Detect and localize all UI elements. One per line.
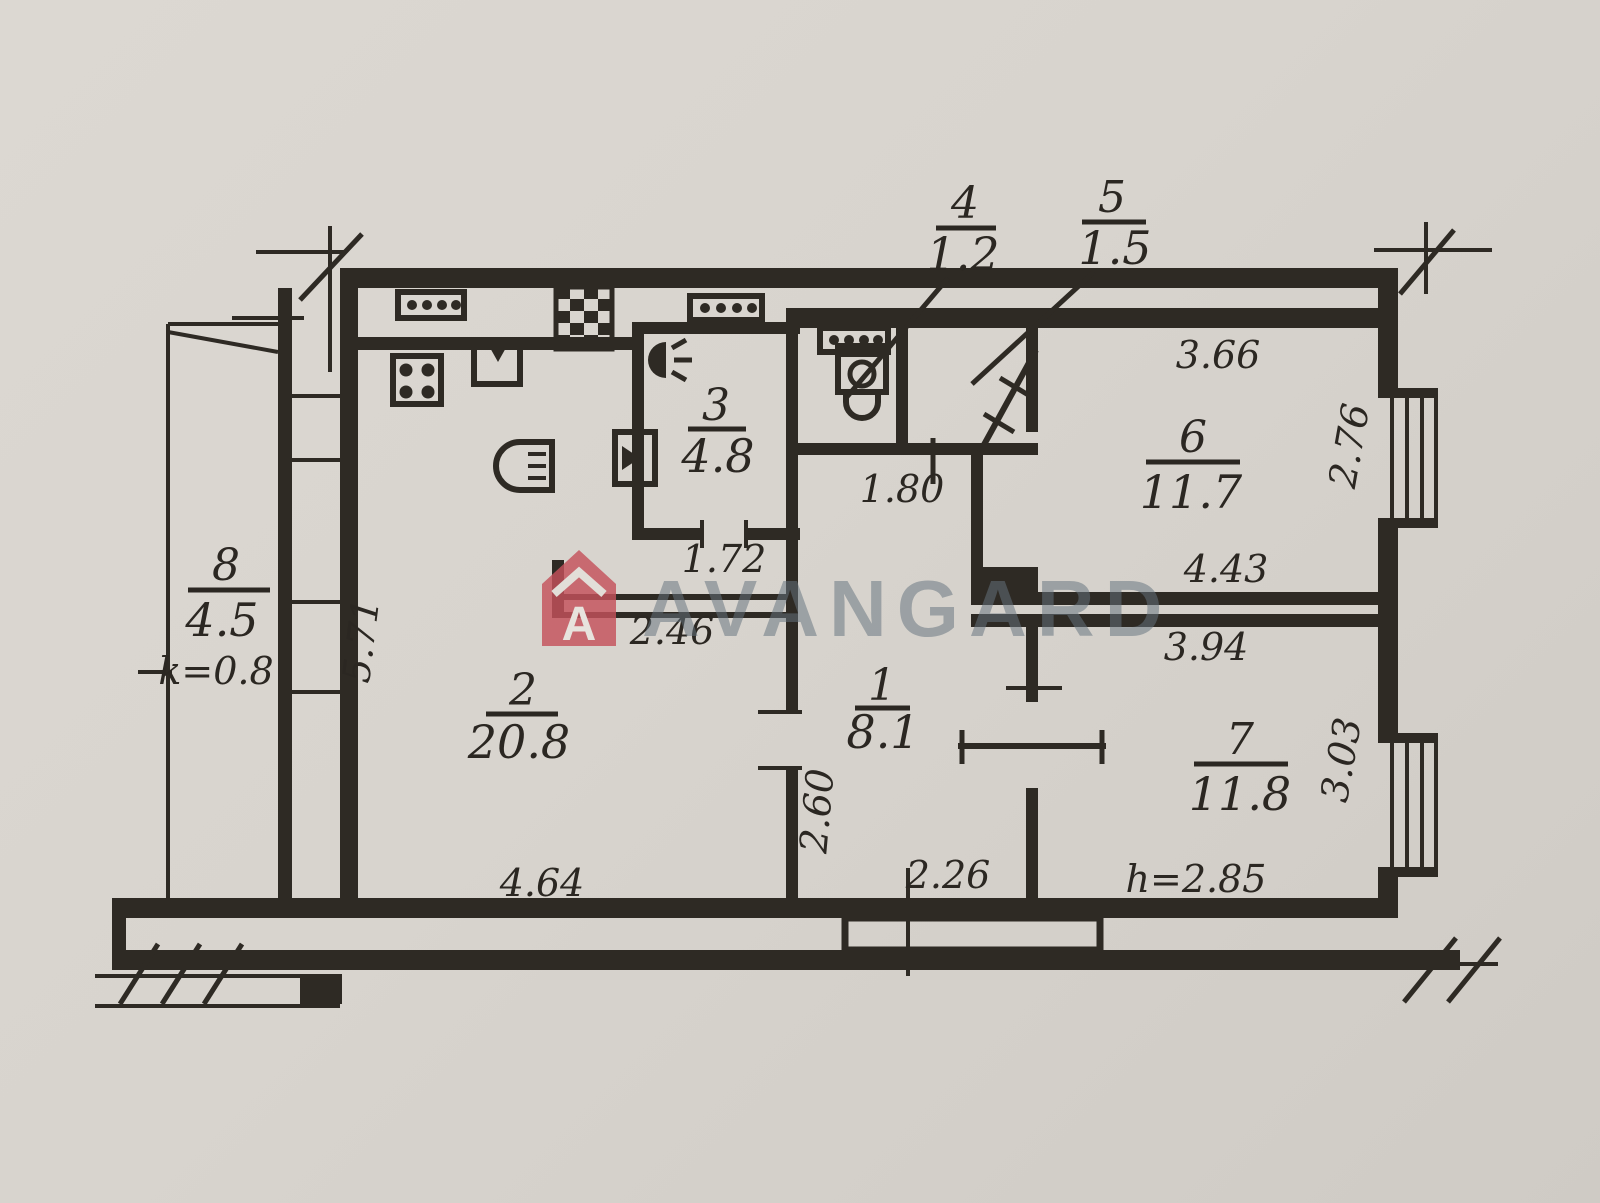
room-2-area: 20.8 [467, 715, 570, 769]
room-6-number: 6 [1179, 412, 1207, 463]
room-4-area: 1.2 [926, 227, 999, 281]
fridge-icon [496, 442, 552, 490]
room-7-area: 11.8 [1189, 767, 1291, 821]
dim-closet-width: 1.80 [860, 467, 945, 511]
balcony-corner-fold [168, 332, 278, 352]
watermark-text: AVANGARD [642, 564, 1172, 653]
floor-plan-canvas: 1 8.1 2 20.8 3 4.8 4 1.2 5 1.5 6 11.7 7 … [0, 0, 1600, 1203]
room-2-number: 2 [508, 665, 537, 716]
floor-plan-page: 1 8.1 2 20.8 3 4.8 4 1.2 5 1.5 6 11.7 7 … [0, 0, 1600, 1203]
dim-room6-side: 2.76 [1320, 400, 1378, 492]
room-1-number: 1 [868, 660, 896, 711]
window-room7 [1378, 733, 1436, 877]
room-8-area: 4.5 [184, 593, 258, 647]
dim-balcony-coef: k=0.8 [158, 649, 273, 693]
dim-room6-top: 3.66 [1176, 333, 1261, 377]
room-3-number: 3 [702, 380, 730, 431]
room-6-area: 11.7 [1140, 465, 1243, 519]
entry-porch [845, 918, 1100, 950]
room-5-number: 5 [1098, 172, 1126, 223]
dim-room6-bottom: 4.43 [1183, 547, 1269, 591]
dim-hall-height: 2.60 [791, 767, 842, 856]
dim-ceiling-height: h=2.85 [1126, 857, 1267, 901]
dim-room2-bottom: 4.64 [499, 861, 585, 905]
room-8-number: 8 [212, 540, 240, 591]
dim-room7-top: 3.94 [1164, 625, 1249, 669]
room-7-number: 7 [1226, 714, 1254, 765]
dim-room7-side: 3.03 [1312, 714, 1370, 805]
bell-icon [648, 340, 692, 380]
stove-icon [393, 356, 441, 404]
dim-room2-side: 5.71 [334, 596, 388, 685]
window-room6 [1378, 388, 1436, 528]
room-3-area: 4.8 [680, 429, 754, 483]
room-1-area: 8.1 [846, 705, 919, 759]
room-4-number: 4 [950, 178, 979, 229]
room-5-area: 1.5 [1078, 221, 1151, 275]
vent-grille-icon-2 [690, 296, 762, 320]
avangard-logo-letter: A [562, 598, 597, 651]
vent-grille-icon [398, 292, 464, 318]
dim-hall-bottom: 2.26 [905, 853, 991, 897]
